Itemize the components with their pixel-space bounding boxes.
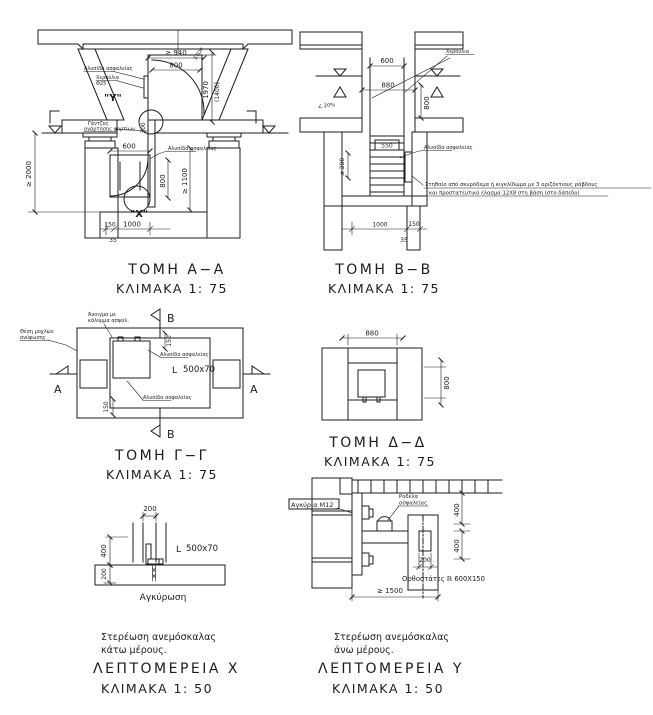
dy-plate — [352, 493, 362, 575]
dy-safety-washer — [377, 517, 392, 531]
dd-band-top — [348, 348, 397, 363]
aa-handles-label: Χερούλια — [96, 74, 120, 81]
aa-dim-1000: 1000 — [123, 221, 141, 229]
dx-angle-size: 500x70 — [186, 544, 218, 554]
bb-level-mark-left — [334, 69, 346, 76]
gg-safety-chain-2: Αλυσίδα ασφαλείας — [143, 394, 192, 401]
aa-structure — [38, 30, 292, 238]
gg-angle-size: 500x70 — [183, 365, 215, 375]
bb-handles-label: Χερούλια — [446, 48, 470, 55]
section-gg-scale: ΚΛΙΜΑΚΑ 1: 75 — [106, 467, 218, 482]
detail-y-title: ΛΕΠΤΟΜΕΡΕΙΑ Υ — [318, 661, 464, 677]
bb-note-line2: και προστατευτικό έλασμα 12Χ8 στη βάση (… — [429, 190, 580, 197]
section-bb-scale: ΚΛΙΜΑΚΑ 1: 75 — [328, 281, 440, 296]
dd-cover — [358, 370, 385, 397]
gg-mark-a-left: Α — [54, 383, 62, 396]
gg-angle-glyph: L — [172, 366, 177, 376]
dy-post-core — [419, 531, 431, 551]
detail-y-scale: ΚΛΙΜΑΚΑ 1: 50 — [332, 681, 444, 696]
gg-section-arrow-a-left — [56, 366, 68, 374]
aa-dim-940: ≥ 940 — [165, 49, 186, 57]
aa-top-slab — [38, 30, 292, 49]
dd-wall-left — [322, 348, 348, 420]
aa-level-mark-right — [263, 126, 275, 133]
dd-band-bottom — [348, 400, 397, 420]
aa-dim-2000: ≥ 2000 — [25, 161, 33, 187]
dx-dim-400: 400 — [100, 544, 108, 557]
gg-levers-label-1: Θέση μοχλών — [20, 328, 54, 335]
aa-door-handle — [144, 76, 148, 98]
section-gg-title: ΤΟΜΗ Γ−Γ — [114, 448, 209, 464]
section-gg: Α Α Β Β 150 150 L 500x70 Αλυσίδα ασφαλεί… — [20, 309, 270, 482]
dy-anchor-bolt-bottom — [313, 553, 373, 566]
aa-dim-1400: (1400) — [214, 82, 221, 102]
bb-slab-left — [300, 32, 362, 45]
aa-safety-chain-top-label: Αλυσίδα ασφαλείας — [84, 65, 133, 72]
bb-floor-right — [415, 118, 463, 132]
gg-outer-slab — [77, 328, 243, 418]
gg-structure — [50, 309, 270, 437]
dx-dim-200-top: 200 — [143, 505, 156, 513]
dy-dimensions — [289, 493, 470, 601]
gg-mark-a-right: Α — [250, 383, 258, 396]
bb-dim-880: 880 — [381, 82, 394, 90]
section-aa: ≥ 940 800 1970 (1400) STOP Αλυσίδα ασφαλ… — [25, 30, 292, 296]
section-bb-title: ΤΟΜΗ Β−Β — [334, 262, 433, 278]
dx-anchoring-label: Αγκύρωση — [140, 592, 187, 603]
section-dd-title: ΤΟΜΗ Δ−Δ — [328, 435, 427, 451]
dd-texts: 880 800 ΤΟΜΗ Δ−Δ ΚΛΙΜΑΚΑ 1: 75 — [324, 330, 451, 470]
bb-texts: 600 880 Χερούλια 800 ∠ 20% 550 ≤ 280 Αλυ… — [318, 48, 598, 296]
dx-nut — [148, 559, 159, 564]
bb-dim-800: 800 — [423, 96, 431, 109]
dx-channel-rails — [133, 523, 166, 562]
bb-delta-mark-left — [334, 87, 346, 97]
gg-section-arrow-a-right — [252, 366, 264, 374]
detail-x: 200 400 200 L 500x70 Αγκύρωση Στερέωση α… — [93, 505, 240, 696]
gg-opening-label-2: κάλυμμα ασφαλ. — [88, 317, 129, 324]
aa-x-mark: "Χ" — [130, 209, 148, 220]
bb-slope-label: ∠ 20% — [318, 102, 336, 110]
aa-dim-600: 600 — [122, 143, 135, 151]
bb-level-mark-right — [431, 69, 443, 76]
aa-dim-1100: ≥ 1100 — [181, 168, 189, 194]
bb-floor-left — [300, 118, 362, 132]
detail-x-title: ΛΕΠΤΟΜΕΡΕΙΑ Χ — [93, 661, 240, 677]
dx-anchor-bolt — [153, 564, 156, 581]
dy-dim-1500: ≥ 1500 — [377, 587, 403, 595]
section-dd-scale: ΚΛΙΜΑΚΑ 1: 75 — [324, 454, 436, 469]
section-bb: 600 880 Χερούλια 800 ∠ 20% 550 ≤ 280 Αλυ… — [300, 32, 651, 296]
dy-washer-label-1: Ροδέλα — [399, 493, 419, 500]
bb-floor2 — [342, 196, 427, 206]
dd-wall-right — [397, 348, 422, 420]
gg-opening-label-1: Άνοιγμα με — [88, 311, 116, 318]
bb-note-line1: Στηθαίο από σκυρόδεμα ή κιγκλίδωμα με 3 … — [425, 181, 598, 188]
bb-dim-600: 600 — [380, 57, 393, 65]
aa-cut-mark-gamma-right — [247, 111, 256, 123]
bb-dim-280: ≤ 280 — [339, 158, 346, 177]
aa-safety-chain-mid-label: Αλυσίδα ασφαλείας — [168, 145, 217, 152]
bb-dim-150: 150 — [408, 221, 420, 228]
gg-section-arrow-b-top — [151, 309, 160, 321]
bb-protective-plate — [405, 152, 412, 182]
gg-lever-seat-right — [213, 360, 240, 388]
dx-angle-glyph: L — [176, 545, 181, 555]
detail-x-scale: ΚΛΙΜΑΚΑ 1: 50 — [101, 681, 213, 696]
gg-levers-label-2: ανύψωσης — [20, 334, 46, 341]
detail-y: Αγκύρια Μ12 Ροδέλα ασφαλείας 200 400 400… — [289, 478, 502, 696]
dd-dim-800: 800 — [443, 376, 451, 389]
drawing-sheet: ≥ 940 800 1970 (1400) STOP Αλυσίδα ασφαλ… — [0, 0, 653, 715]
dy-anchors-label: Αγκύρια Μ12 — [291, 501, 333, 509]
aa-dim-35: 35 — [109, 237, 117, 244]
section-aa-scale: ΚΛΙΜΑΚΑ 1: 75 — [116, 281, 228, 296]
aa-capital-left — [83, 133, 117, 148]
bb-dim-35: 35 — [400, 237, 408, 244]
section-aa-title: ΤΟΜΗ Α−Α — [127, 262, 226, 278]
dy-dim-200: 200 — [419, 557, 431, 564]
aa-y-mark: "Υ" — [104, 93, 122, 104]
gg-mark-b-bottom: Β — [167, 428, 175, 441]
aa-dim-150: 150 — [104, 222, 116, 229]
aa-dim-1970: 1970 — [202, 81, 210, 99]
dy-caption-1: Στερέωση ανεμόσκαλας — [334, 632, 449, 643]
dd-dim-880: 880 — [365, 330, 378, 338]
bb-wall-deep-left — [324, 206, 342, 250]
dy-washer-label-2: ασφαλείας — [399, 500, 427, 507]
dy-dim-400-top: 400 — [453, 503, 461, 516]
gg-section-arrow-b-bottom — [151, 425, 160, 437]
bb-delta-mark-right — [431, 87, 443, 97]
technical-drawing: ≥ 940 800 1970 (1400) STOP Αλυσίδα ασφαλ… — [0, 0, 653, 715]
dy-uprights-label: Ορθοστάτες ℝ 600Χ150 — [402, 575, 485, 583]
dy-ladder — [352, 480, 502, 493]
dy-bracket-arm — [362, 531, 408, 543]
bb-wall-lower-right — [412, 132, 427, 206]
section-dd: 880 800 ΤΟΜΗ Δ−Δ ΚΛΙΜΑΚΑ 1: 75 — [322, 330, 451, 470]
dy-caption-2: άνω μέρους. — [334, 645, 394, 656]
dy-texts: Αγκύρια Μ12 Ροδέλα ασφαλείας 200 400 400… — [291, 493, 485, 696]
dx-angle-bracket — [146, 544, 163, 564]
dx-caption-2: κάτω μέρους. — [101, 645, 167, 656]
aa-dim-300: 300 — [140, 122, 147, 134]
dy-wall-corner — [340, 478, 352, 494]
bb-ladder — [370, 58, 404, 196]
aa-dim-800-low: 800 — [159, 174, 167, 187]
bb-dim-1000: 1000 — [372, 222, 387, 229]
bb-dim-550: 550 — [381, 143, 393, 150]
aa-texts: ≥ 940 800 1970 (1400) STOP Αλυσίδα ασφαλ… — [25, 47, 228, 296]
aa-handles-dia-label: Φ25 — [96, 81, 106, 87]
dx-dimensions — [104, 512, 156, 583]
bb-wall-deep-right — [407, 206, 420, 250]
dx-caption-1: Στερέωση ανεμόσκαλας — [101, 632, 216, 643]
dx-structure — [95, 523, 225, 585]
gg-lever-seat-left — [80, 360, 107, 388]
gg-mark-b-top: Β — [167, 312, 175, 325]
aa-hook-label-2: ανάρτησης φορτίων — [84, 126, 135, 133]
bb-slab-right — [415, 32, 463, 45]
gg-cover — [113, 341, 150, 378]
aa-floor-right — [155, 120, 263, 133]
gg-dim-150-bot: 150 — [103, 401, 110, 413]
aa-lower-swing-arc — [111, 158, 148, 196]
dy-dim-400-bot: 400 — [453, 539, 461, 552]
aa-cut-mark-gamma-left — [50, 111, 59, 123]
aa-wall-right — [207, 148, 240, 238]
gg-dim-150-top: 150 — [166, 335, 173, 347]
dx-ground — [95, 565, 225, 585]
aa-level-mark-left — [49, 126, 61, 133]
gg-safety-chain-1: Αλυσίδα ασφαλείας — [160, 351, 209, 358]
bb-safety-chain-label: Αλυσίδα ασφαλείας — [424, 144, 473, 151]
dd-structure — [322, 348, 422, 420]
dx-dim-200-ground: 200 — [101, 568, 108, 580]
aa-dim-800-top: 800 — [169, 62, 182, 70]
aa-slab-shadow — [83, 44, 243, 49]
